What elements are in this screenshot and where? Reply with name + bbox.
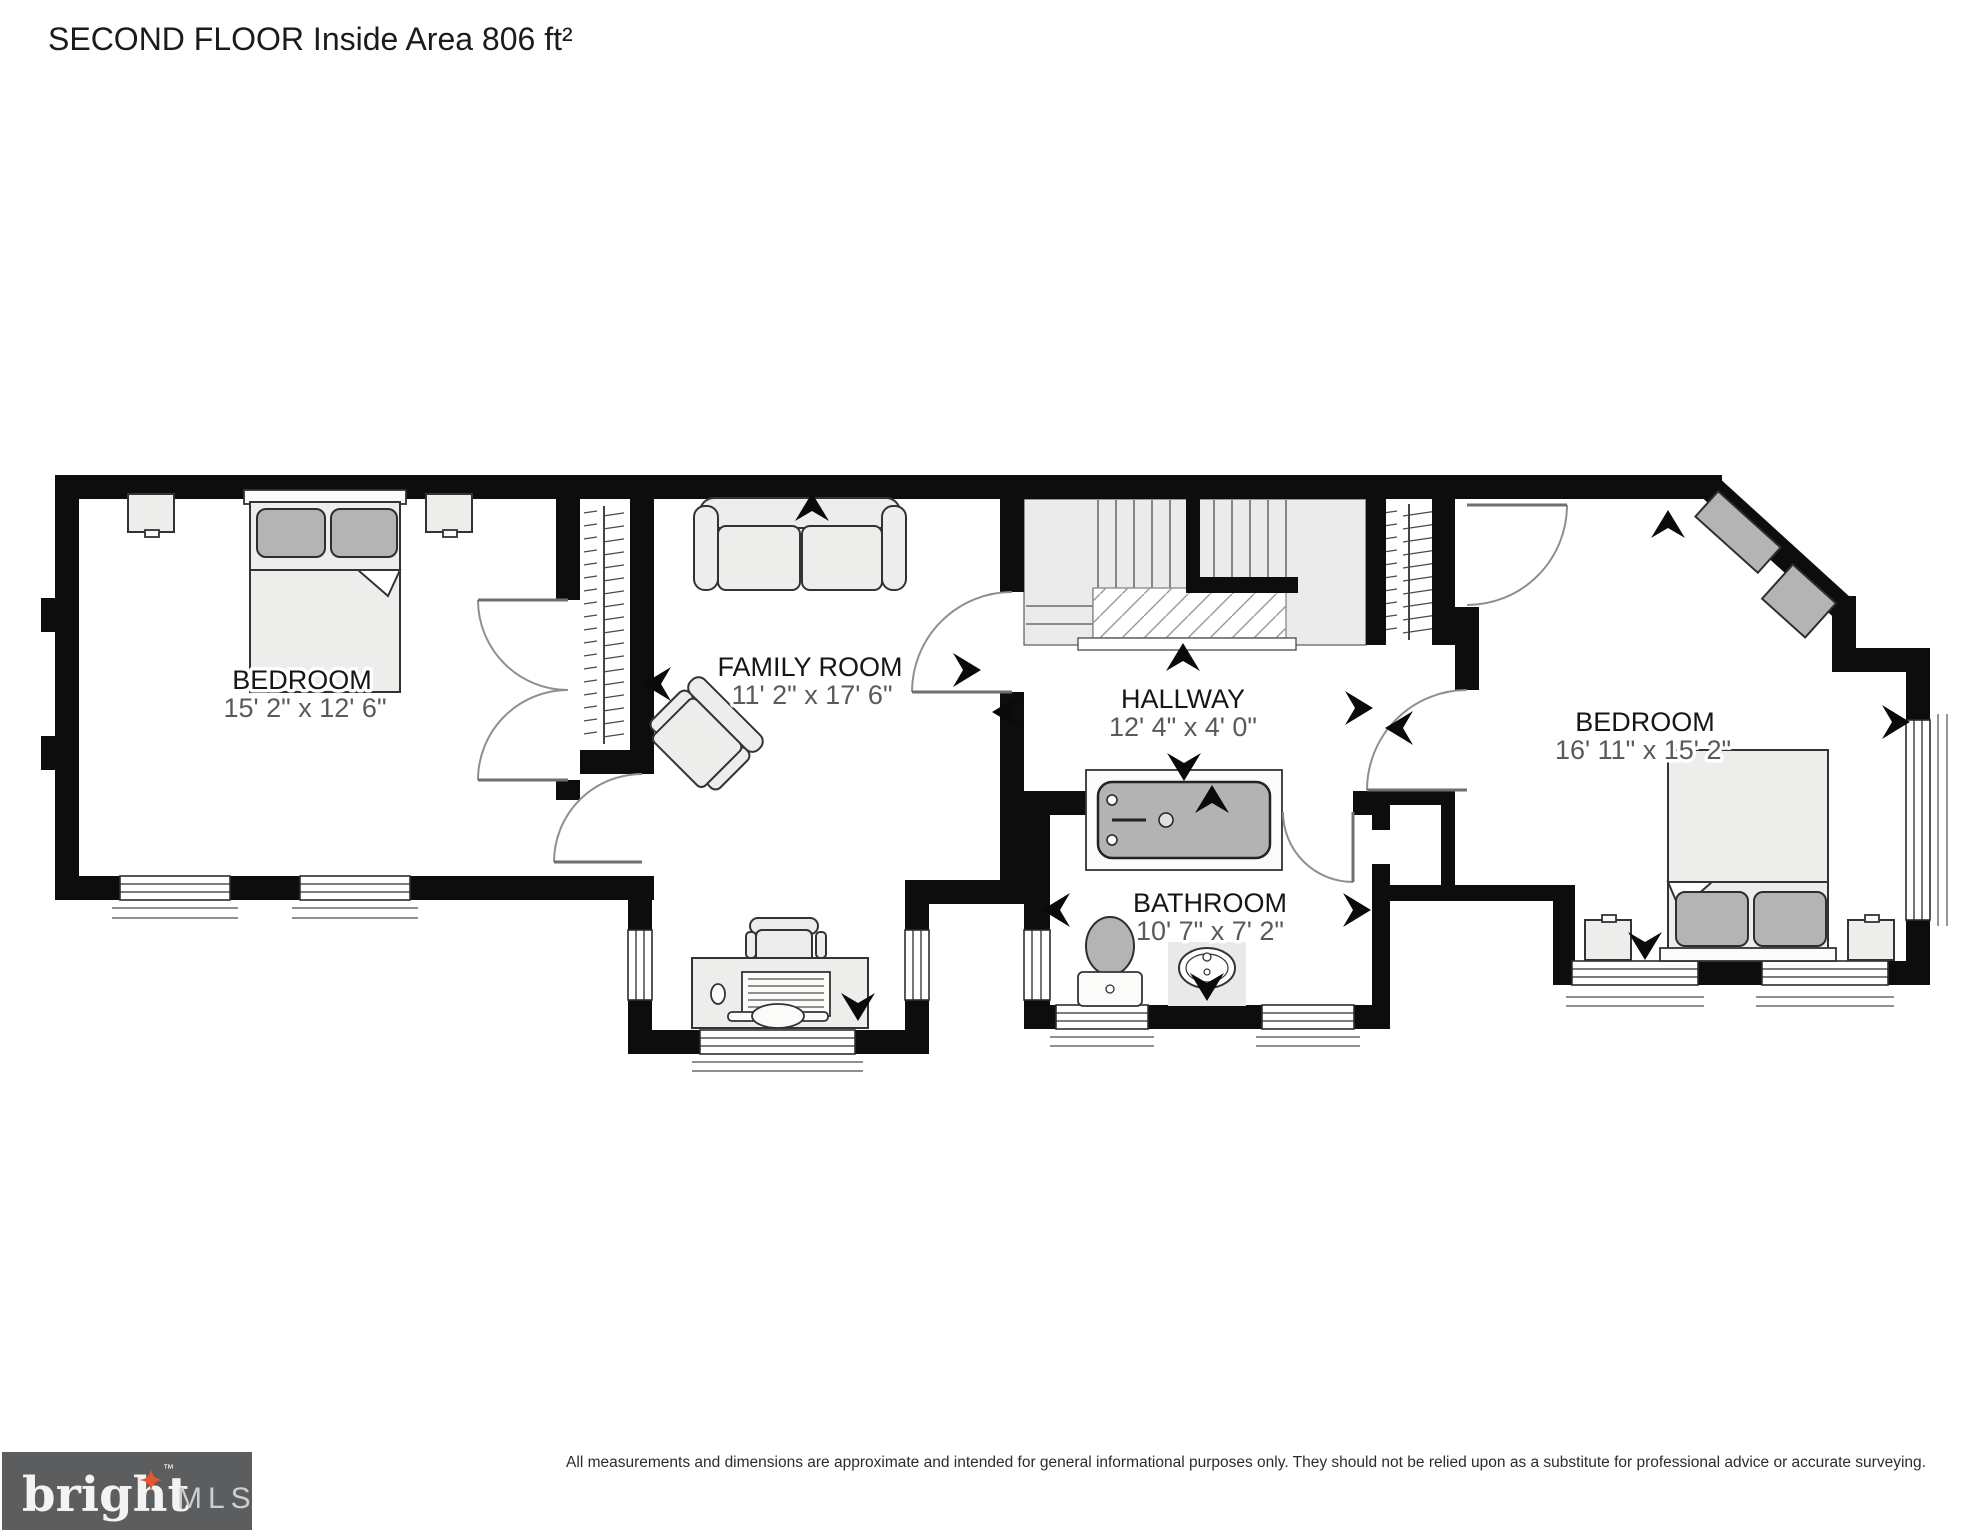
brand-logo: bright ™ MLS — [2, 1452, 257, 1530]
room-name: HALLWAY — [1121, 684, 1245, 714]
door-arc — [1283, 812, 1353, 882]
direction-arrow — [1628, 932, 1662, 960]
bed-icon — [244, 490, 406, 692]
nightstand-icon — [426, 494, 472, 537]
nightstand-icon — [1585, 915, 1631, 960]
door-arc — [1367, 690, 1467, 790]
room-dimensions: 12' 4" x 4' 0" — [1109, 712, 1257, 742]
floorplan-sheet: SECOND FLOOR Inside Area 806 ft² — [0, 0, 1987, 1535]
page-title: SECOND FLOOR Inside Area 806 ft² — [48, 21, 573, 57]
direction-arrow — [1651, 510, 1685, 538]
room-label-bathroom: BATHROOM 10' 7" x 7' 2" — [1133, 888, 1287, 946]
room-label-bedroom-right: BEDROOM 16' 11" x 15' 2" — [1555, 707, 1731, 765]
room-dimensions: 15' 2" x 12' 6" — [223, 693, 386, 723]
room-name: BATHROOM — [1133, 888, 1287, 918]
room-label-family-room: FAMILY ROOM 11' 2" x 17' 6" — [717, 652, 902, 710]
disclaimer-text: All measurements and dimensions are appr… — [566, 1454, 1926, 1471]
logo-brand-text: bright — [22, 1467, 190, 1523]
closet-rod-icon — [1386, 504, 1432, 640]
direction-arrow — [953, 653, 981, 687]
room-name: BEDROOM — [1575, 707, 1715, 737]
bed-icon — [1660, 750, 1836, 961]
nightstand-icon — [1848, 915, 1894, 960]
sofa-icon — [694, 498, 906, 590]
room-name: FAMILY ROOM — [717, 652, 902, 682]
door-arc — [1467, 505, 1567, 605]
bathtub-icon — [1086, 770, 1282, 870]
room-name: BEDROOM — [232, 665, 372, 695]
direction-arrow — [1345, 691, 1373, 725]
nightstand-icon — [128, 494, 174, 537]
room-dimensions: 16' 11" x 15' 2" — [1555, 735, 1731, 765]
closet-rod-icon — [584, 506, 624, 744]
desk-icon — [692, 958, 868, 1028]
toilet-icon — [1078, 917, 1142, 1006]
floor-plan: SECOND FLOOR Inside Area 806 ft² — [0, 0, 1987, 1535]
direction-arrow — [1343, 893, 1371, 927]
door-arc — [478, 690, 568, 780]
room-dimensions: 11' 2" x 17' 6" — [731, 680, 892, 710]
logo-mls-text: MLS — [177, 1482, 257, 1515]
room-dimensions: 10' 7" x 7' 2" — [1136, 916, 1284, 946]
room-label-hallway: HALLWAY 12' 4" x 4' 0" — [1109, 684, 1257, 742]
logo-tm-text: ™ — [163, 1463, 174, 1475]
room-label-bedroom-left: BEDROOM 15' 2" x 12' 6" — [223, 665, 386, 723]
door-arc — [478, 600, 568, 690]
wall-mounted-console-icon — [1695, 491, 1836, 637]
